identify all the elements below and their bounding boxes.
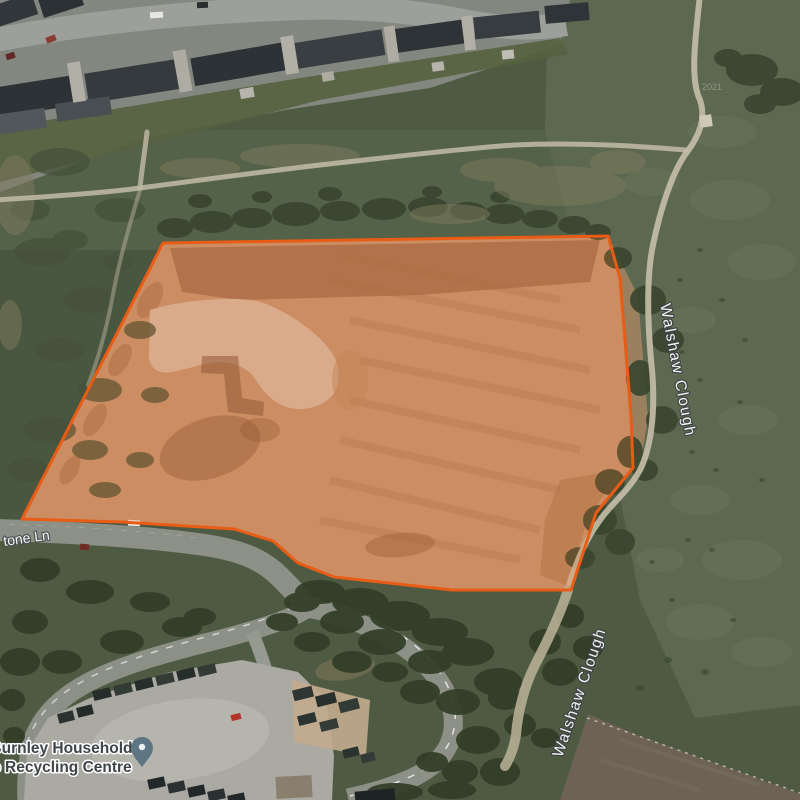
satellite-map[interactable]: Walshaw Clough Walshaw Clough tone Ln s … — [0, 0, 800, 800]
svg-text:ste Recycling Centre[interactable]: ste Recycling Centre — [0, 759, 132, 776]
imagery-year-watermark: 2021 — [702, 82, 722, 92]
svg-text:s Burnley Household[interactable]: s Burnley Household — [0, 740, 133, 757]
